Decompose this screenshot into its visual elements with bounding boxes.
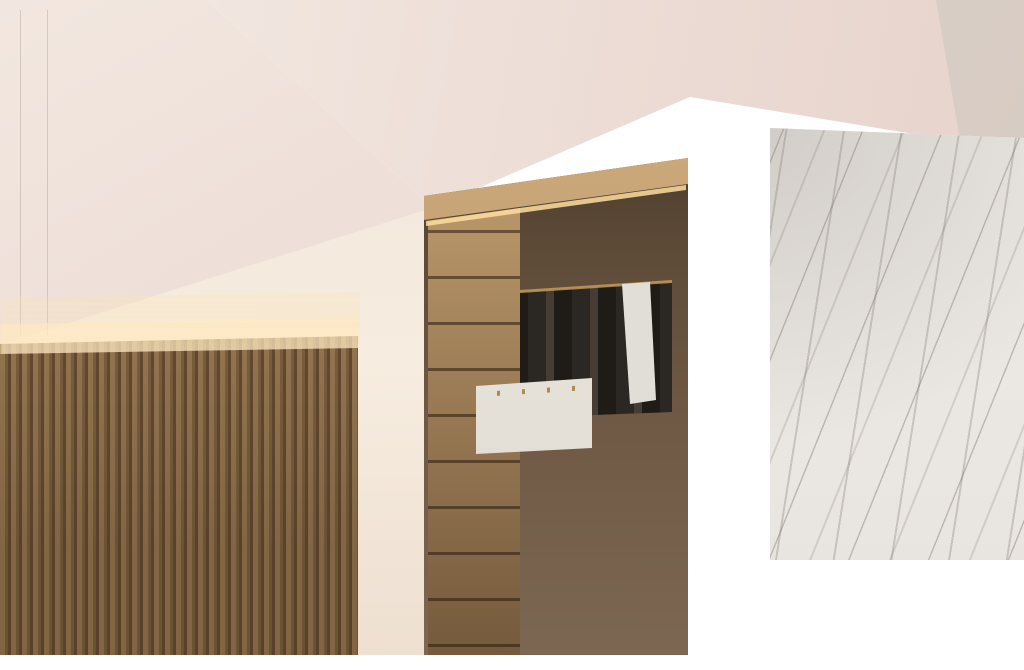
room-photo: SOARES EMPREENDIMENTOS Suíte Master MOND… [0, 0, 1024, 670]
walk-in-closet [0, 0, 1024, 670]
glass-reflection [0, 0, 1024, 670]
